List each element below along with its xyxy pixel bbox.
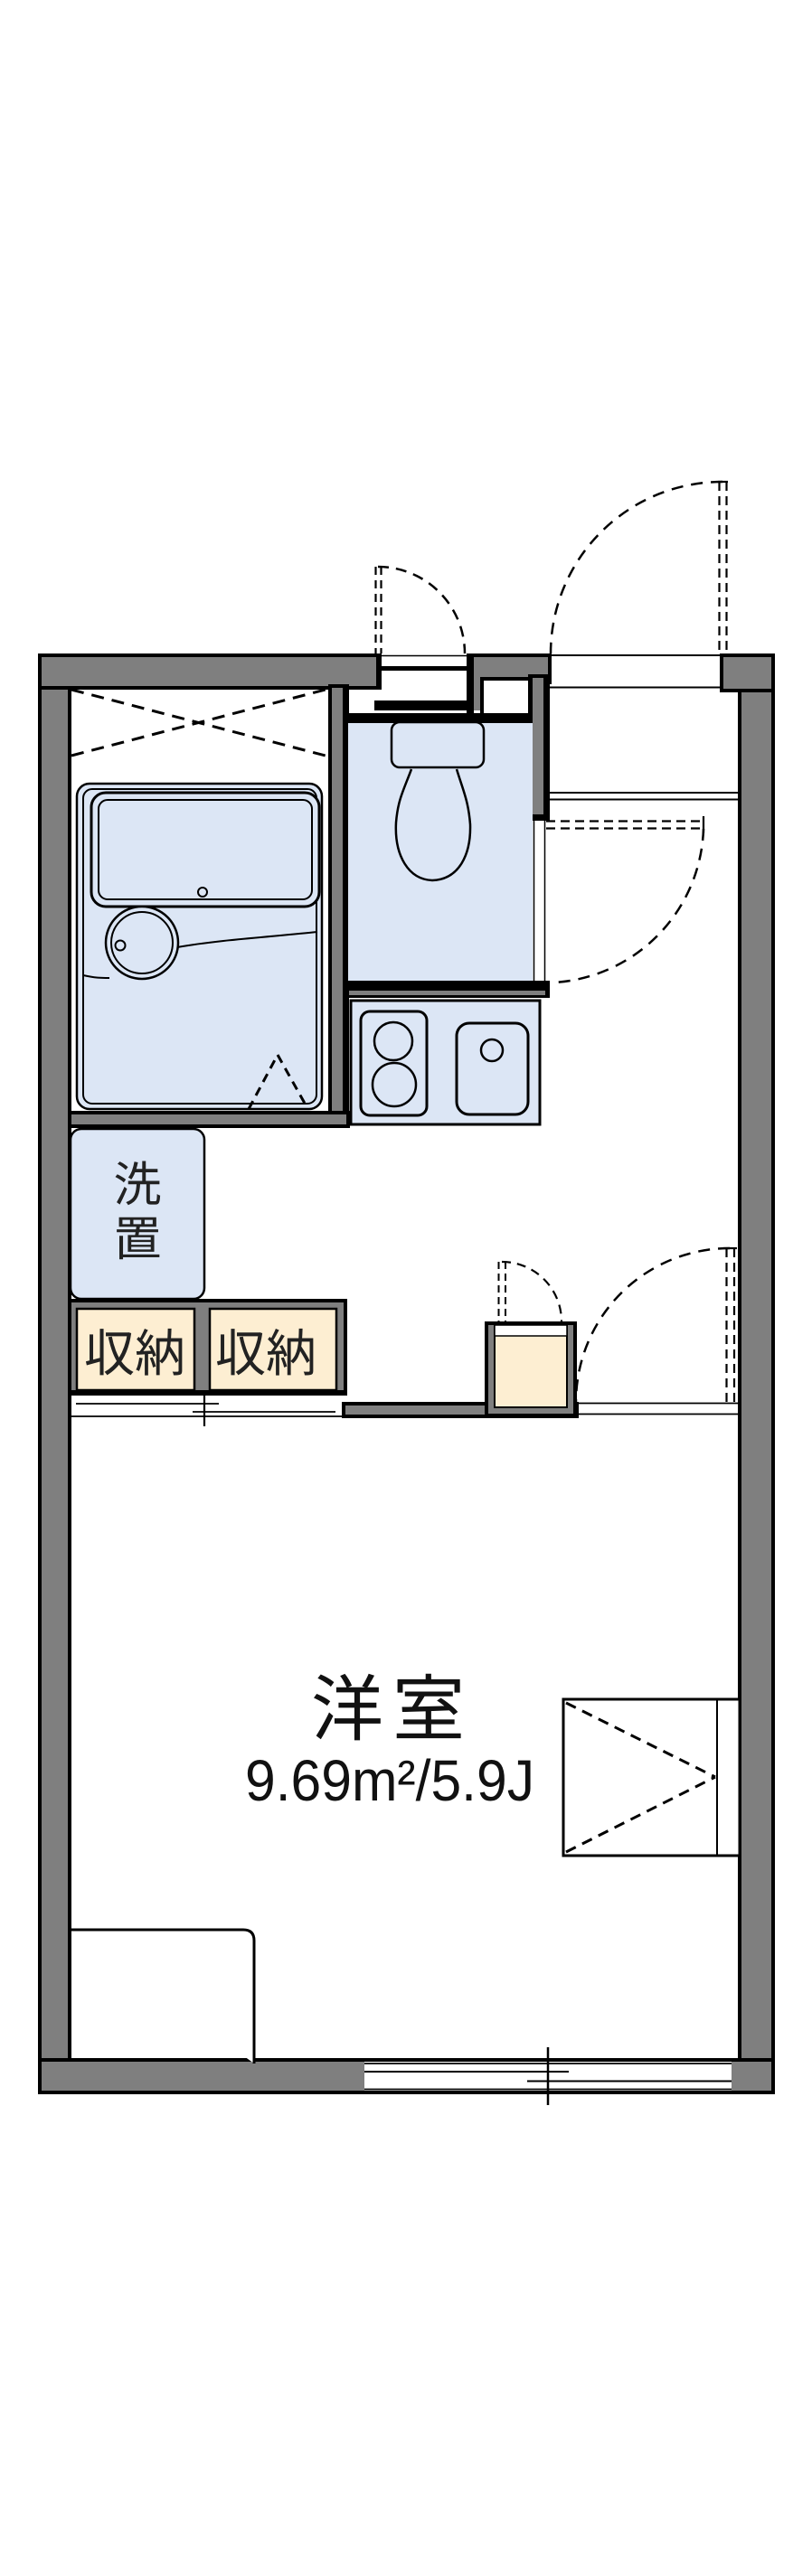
- svg-text:9.69m²/5.9J: 9.69m²/5.9J: [245, 1748, 534, 1813]
